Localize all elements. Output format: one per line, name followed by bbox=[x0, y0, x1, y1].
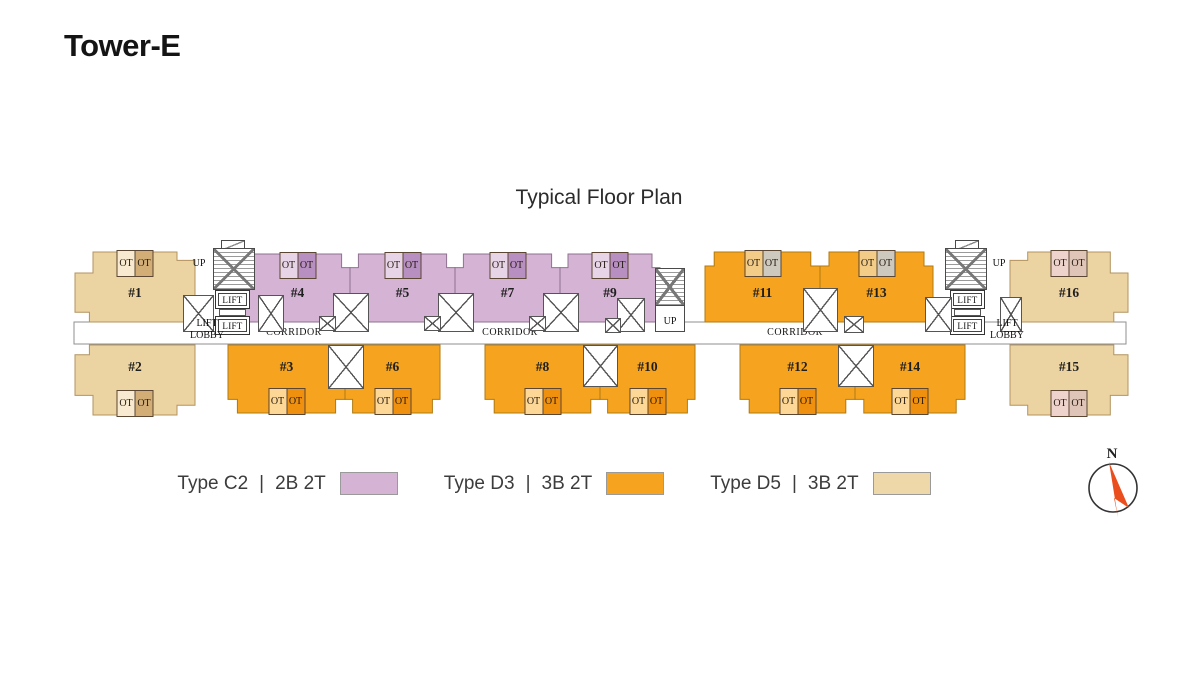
open-terrace-box: OT bbox=[858, 250, 877, 277]
open-terrace-pair: OTOT bbox=[1051, 250, 1088, 277]
open-terrace-box: OT bbox=[647, 388, 666, 415]
open-terrace-box: OT bbox=[892, 388, 911, 415]
open-terrace-box: OT bbox=[1069, 390, 1088, 417]
unit-7: #7OTOT bbox=[455, 254, 560, 322]
lift-lobby-line: LOBBY bbox=[182, 330, 232, 342]
unit-6-label: #6 bbox=[386, 359, 400, 375]
open-terrace-box: OT bbox=[610, 252, 629, 279]
open-terrace-box: OT bbox=[910, 388, 929, 415]
unit-4-label: #4 bbox=[291, 285, 305, 301]
legend-item-type-d3: Type D3|3B 2T bbox=[444, 472, 664, 495]
open-terrace-box: OT bbox=[297, 252, 316, 279]
compass: N bbox=[1082, 448, 1146, 524]
legend-type-label: Type D5 bbox=[710, 473, 781, 495]
open-terrace-box: OT bbox=[384, 252, 403, 279]
legend-spec: 2B 2T bbox=[275, 473, 326, 495]
page-title: Tower-E bbox=[64, 28, 181, 64]
open-terrace-box: OT bbox=[592, 252, 611, 279]
floor-plan: #1OTOT#2OTOT#3OTOT#4OTOT#5OTOT#6OTOT#7OT… bbox=[72, 240, 1130, 432]
open-terrace-pair: OTOT bbox=[592, 252, 629, 279]
legend-spec: 3B 2T bbox=[808, 473, 859, 495]
open-terrace-box: OT bbox=[135, 390, 154, 417]
legend-spec: 3B 2T bbox=[542, 473, 593, 495]
unit-10: #10OTOT bbox=[600, 345, 695, 413]
open-terrace-box: OT bbox=[286, 388, 305, 415]
open-terrace-pair: OTOT bbox=[858, 250, 895, 277]
open-terrace-box: OT bbox=[489, 252, 508, 279]
open-terrace-pair: OTOT bbox=[629, 388, 666, 415]
lift-door-right bbox=[954, 309, 981, 316]
open-terrace-pair: OTOT bbox=[117, 250, 154, 277]
open-terrace-box: OT bbox=[268, 388, 287, 415]
open-terrace-box: OT bbox=[524, 388, 543, 415]
lift-1-right: LIFT bbox=[950, 290, 985, 309]
unit-10-label: #10 bbox=[637, 359, 657, 375]
open-terrace-box: OT bbox=[392, 388, 411, 415]
open-terrace-box: OT bbox=[779, 388, 798, 415]
lift-lobby-label-right: LIFTLOBBY bbox=[982, 318, 1032, 344]
legend-item-type-c2: Type C2|2B 2T bbox=[177, 472, 397, 495]
open-terrace-box: OT bbox=[374, 388, 393, 415]
open-terrace-box: OT bbox=[402, 252, 421, 279]
up-label-left: UP bbox=[187, 258, 211, 270]
legend-color-swatch bbox=[873, 472, 931, 495]
unit-14: #14OTOT bbox=[855, 345, 965, 413]
legend-type-label: Type D3 bbox=[444, 473, 515, 495]
unit-6: #6OTOT bbox=[345, 345, 440, 413]
lift-lobby-line: LIFT bbox=[182, 318, 232, 330]
open-terrace-pair: OTOT bbox=[744, 250, 781, 277]
unit-4: #4OTOT bbox=[245, 254, 350, 322]
lift-lobby-line: LOBBY bbox=[982, 330, 1032, 342]
unit-2-label: #2 bbox=[128, 359, 142, 375]
open-terrace-pair: OTOT bbox=[892, 388, 929, 415]
unit-11-label: #11 bbox=[753, 285, 773, 301]
open-terrace-box: OT bbox=[1051, 390, 1070, 417]
open-terrace-box: OT bbox=[117, 250, 136, 277]
open-terrace-pair: OTOT bbox=[779, 388, 816, 415]
open-terrace-box: OT bbox=[135, 250, 154, 277]
open-terrace-box: OT bbox=[117, 390, 136, 417]
unit-3: #3OTOT bbox=[228, 345, 345, 413]
open-terrace-box: OT bbox=[542, 388, 561, 415]
legend-type-label: Type C2 bbox=[177, 473, 248, 495]
unit-11: #11OTOT bbox=[705, 252, 820, 322]
open-terrace-pair: OTOT bbox=[279, 252, 316, 279]
open-terrace-pair: OTOT bbox=[384, 252, 421, 279]
unit-1-label: #1 bbox=[128, 285, 142, 301]
unit-14-label: #14 bbox=[900, 359, 920, 375]
unit-13: #13OTOT bbox=[820, 252, 933, 322]
up-label-middle: UP bbox=[656, 316, 684, 328]
north-arrow-icon bbox=[1109, 462, 1129, 518]
lift-lobby-label-left: LIFTLOBBY bbox=[182, 318, 232, 344]
unit-12-label: #12 bbox=[787, 359, 807, 375]
open-terrace-box: OT bbox=[1069, 250, 1088, 277]
legend-item-type-d5: Type D5|3B 2T bbox=[710, 472, 930, 495]
open-terrace-box: OT bbox=[279, 252, 298, 279]
stairs-middle-flight bbox=[656, 269, 684, 306]
plan-title: Typical Floor Plan bbox=[0, 186, 1198, 210]
unit-5: #5OTOT bbox=[350, 254, 455, 322]
open-terrace-pair: OTOT bbox=[1051, 390, 1088, 417]
unit-16-label: #16 bbox=[1059, 285, 1079, 301]
legend-separator: | bbox=[259, 473, 264, 495]
unit-9-label: #9 bbox=[603, 285, 617, 301]
lift-lobby-line: LIFT bbox=[982, 318, 1032, 330]
open-terrace-box: OT bbox=[507, 252, 526, 279]
unit-8: #8OTOT bbox=[485, 345, 600, 413]
unit-7-label: #7 bbox=[501, 285, 515, 301]
unit-2: #2OTOT bbox=[75, 345, 195, 415]
open-terrace-box: OT bbox=[744, 250, 763, 277]
compass-rose-icon bbox=[1082, 460, 1146, 524]
legend-color-swatch bbox=[340, 472, 398, 495]
unit-12: #12OTOT bbox=[740, 345, 855, 413]
open-terrace-box: OT bbox=[876, 250, 895, 277]
unit-8-label: #8 bbox=[536, 359, 550, 375]
open-terrace-box: OT bbox=[629, 388, 648, 415]
open-terrace-box: OT bbox=[762, 250, 781, 277]
unit-13-label: #13 bbox=[866, 285, 886, 301]
open-terrace-box: OT bbox=[1051, 250, 1070, 277]
open-terrace-pair: OTOT bbox=[268, 388, 305, 415]
unit-1: #1OTOT bbox=[75, 252, 195, 322]
legend-separator: | bbox=[792, 473, 797, 495]
lift-2-right: LIFT bbox=[950, 316, 985, 335]
up-label-right: UP bbox=[987, 258, 1011, 270]
unit-15-label: #15 bbox=[1059, 359, 1079, 375]
unit-15: #15OTOT bbox=[1010, 345, 1128, 415]
stairs-right bbox=[945, 248, 987, 290]
open-terrace-pair: OTOT bbox=[524, 388, 561, 415]
legend-color-swatch bbox=[606, 472, 664, 495]
unit-16: #16OTOT bbox=[1010, 252, 1128, 322]
unit-9: #9OTOT bbox=[560, 254, 660, 322]
legend-separator: | bbox=[526, 473, 531, 495]
legend: Type C2|2B 2TType D3|3B 2TType D5|3B 2T bbox=[0, 472, 1108, 495]
unit-5-label: #5 bbox=[396, 285, 410, 301]
unit-3-label: #3 bbox=[280, 359, 294, 375]
open-terrace-pair: OTOT bbox=[117, 390, 154, 417]
open-terrace-pair: OTOT bbox=[489, 252, 526, 279]
open-terrace-box: OT bbox=[797, 388, 816, 415]
lift-door-left bbox=[219, 309, 246, 316]
open-terrace-pair: OTOT bbox=[374, 388, 411, 415]
